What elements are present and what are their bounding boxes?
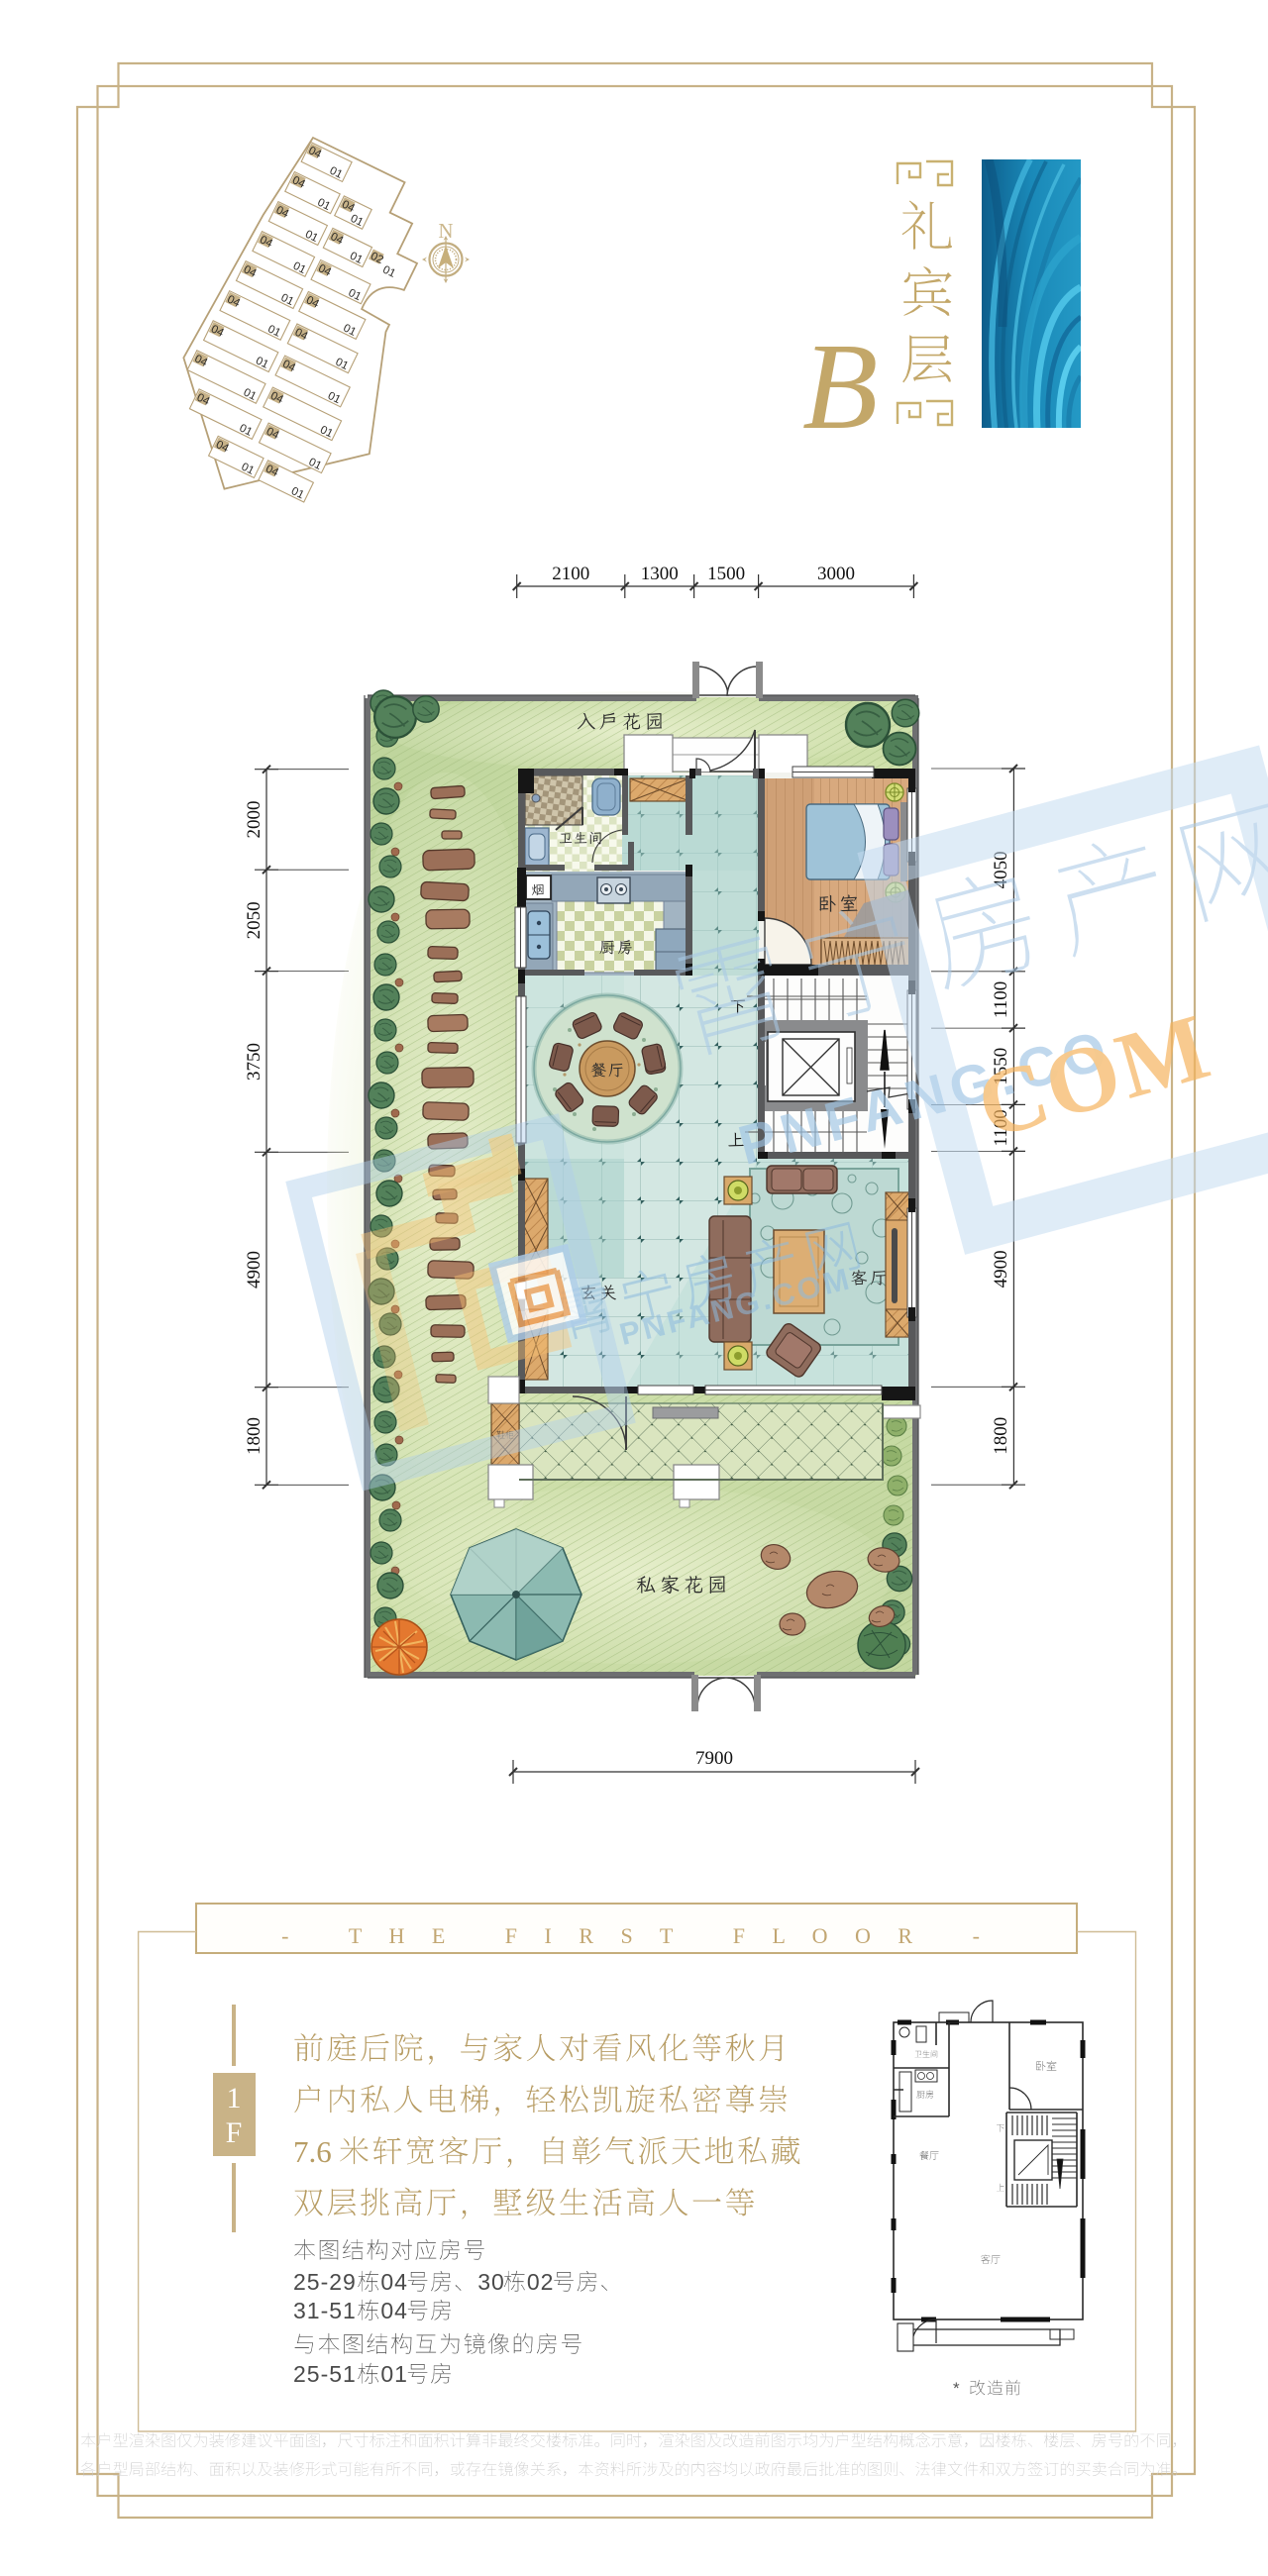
svg-text:2000: 2000 [244, 800, 264, 838]
svg-text:01: 01 [380, 264, 397, 280]
svg-text:- T H E F I R S T F L O: - T H E F I R S T F L O O R - [281, 1923, 991, 1948]
svg-text:1100: 1100 [991, 981, 1011, 1018]
svg-text:1500: 1500 [707, 564, 745, 584]
svg-text:N: N [438, 219, 453, 243]
svg-text:1800: 1800 [991, 1417, 1011, 1455]
svg-text:04: 04 [380, 2269, 408, 2295]
svg-text:F: F [226, 2116, 243, 2149]
svg-text:7.6: 7.6 [293, 2134, 332, 2169]
svg-text:*: * [953, 2379, 960, 2398]
svg-text:25-29: 25-29 [293, 2269, 357, 2295]
svg-text:2100: 2100 [552, 564, 589, 584]
svg-text:31-51: 31-51 [293, 2298, 357, 2323]
svg-text:B: B [802, 319, 878, 456]
svg-text:02: 02 [527, 2269, 555, 2295]
svg-text:01: 01 [380, 2361, 408, 2387]
svg-text:1300: 1300 [641, 564, 679, 584]
svg-text:30: 30 [477, 2269, 505, 2295]
svg-text:3750: 3750 [244, 1043, 264, 1081]
svg-text:1: 1 [227, 2082, 242, 2114]
svg-text:02: 02 [369, 251, 385, 266]
svg-text:4900: 4900 [991, 1250, 1011, 1288]
svg-text:3000: 3000 [817, 564, 855, 584]
svg-text:2050: 2050 [244, 901, 264, 939]
svg-text:7900: 7900 [695, 1748, 733, 1769]
svg-text:25-51: 25-51 [293, 2361, 357, 2387]
svg-text:04: 04 [380, 2298, 408, 2323]
svg-text:1800: 1800 [244, 1417, 264, 1455]
svg-text:4900: 4900 [244, 1251, 264, 1288]
